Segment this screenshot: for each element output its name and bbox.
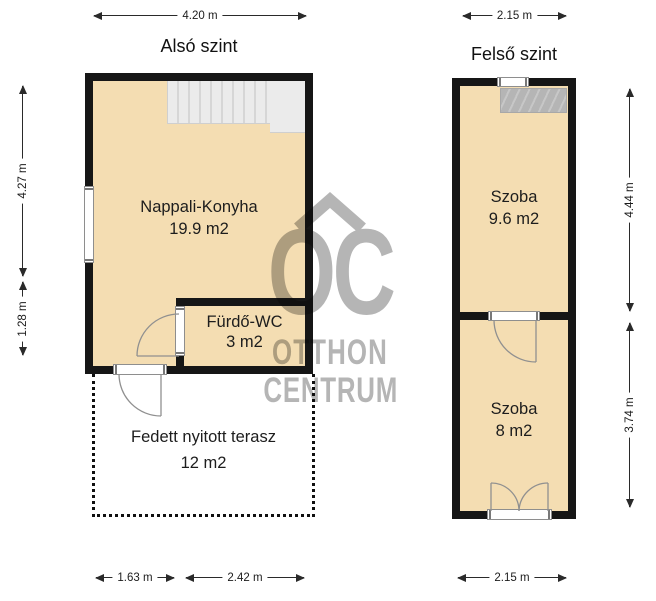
- wall-upper-left: [452, 78, 460, 519]
- room-name: Nappali-Konyha: [93, 196, 305, 218]
- arrow-down-icon: [626, 303, 634, 312]
- room-area: 19.9 m2: [93, 218, 305, 240]
- room-area: 3 m2: [184, 332, 305, 352]
- dim-value: 4.27 m: [17, 158, 29, 203]
- wall-bathroom-horizontal: [176, 298, 313, 306]
- floor-title-upper: Felső szint: [452, 44, 576, 65]
- dim-lower-height-hall: 1.28 m: [17, 281, 29, 356]
- room-label-szoba-1: Szoba 9.6 m2: [460, 186, 568, 230]
- arrow-up-icon: [626, 322, 634, 331]
- window-upper-top: [497, 77, 529, 87]
- stairs-steps: [167, 81, 270, 124]
- room-area: 9.6 m2: [460, 208, 568, 230]
- room-label-szoba-2: Szoba 8 m2: [460, 398, 568, 442]
- arrow-up-icon: [19, 85, 27, 94]
- room-name: Szoba: [460, 186, 568, 208]
- arrow-down-icon: [626, 499, 634, 508]
- room-name: Szoba: [460, 398, 568, 420]
- room-label-furdo-wc: Fürdő-WC 3 m2: [184, 312, 305, 352]
- dim-lower-bottom-left: 1.63 m: [95, 572, 175, 584]
- dim-value: 1.28 m: [17, 296, 29, 341]
- room-area: 12 m2: [92, 450, 315, 476]
- dim-value: 3.74 m: [624, 392, 636, 437]
- room-label-terasz: Fedett nyitott terasz 12 m2: [92, 424, 315, 476]
- wall-lower-right: [305, 73, 313, 374]
- arrow-left-icon: [185, 574, 194, 582]
- dim-lower-height-main: 4.27 m: [17, 85, 29, 277]
- arrow-left-icon: [95, 574, 104, 582]
- dim-value: 1.63 m: [112, 572, 157, 584]
- door-threshold-upper-bottom: [487, 509, 552, 520]
- arrow-right-icon: [296, 574, 305, 582]
- arrow-right-icon: [298, 12, 307, 20]
- room-label-nappali-konyha: Nappali-Konyha 19.9 m2: [93, 196, 305, 240]
- dim-upper-height-room1: 4.44 m: [624, 88, 636, 312]
- door-frame-upper-middle: [488, 311, 540, 321]
- dim-lower-width: 4.20 m: [93, 10, 307, 22]
- arrow-up-icon: [626, 88, 634, 97]
- wall-upper-right: [568, 78, 576, 519]
- floorplan-canvas: Alsó szint Nappali-Konyha 19.9 m2 Fürdő-…: [0, 0, 656, 601]
- arrow-left-icon: [457, 574, 466, 582]
- stairs-landing: [270, 81, 305, 133]
- dim-upper-width-top: 2.15 m: [462, 10, 567, 22]
- room-area-upper-interior: [460, 86, 568, 511]
- dim-value: 2.15 m: [492, 10, 537, 22]
- arrow-right-icon: [166, 574, 175, 582]
- room-name: Fürdő-WC: [184, 312, 305, 332]
- arrow-left-icon: [93, 12, 102, 20]
- arrow-left-icon: [462, 12, 471, 20]
- wall-lower-top: [85, 73, 313, 81]
- dim-value: 2.15 m: [489, 572, 534, 584]
- dim-upper-height-room2: 3.74 m: [624, 322, 636, 508]
- dim-value: 4.20 m: [177, 10, 222, 22]
- dim-value: 4.44 m: [624, 177, 636, 222]
- room-name: Fedett nyitott terasz: [92, 424, 315, 450]
- floor-title-lower: Alsó szint: [85, 36, 313, 57]
- stairs-opening-above: [500, 88, 567, 113]
- arrow-down-icon: [19, 347, 27, 356]
- arrow-down-icon: [19, 268, 27, 277]
- dim-upper-width-bottom: 2.15 m: [457, 572, 567, 584]
- room-area: 8 m2: [460, 420, 568, 442]
- dim-lower-bottom-right: 2.42 m: [185, 572, 305, 584]
- arrow-up-icon: [19, 281, 27, 290]
- arrow-right-icon: [558, 12, 567, 20]
- dim-value: 2.42 m: [222, 572, 267, 584]
- arrow-right-icon: [558, 574, 567, 582]
